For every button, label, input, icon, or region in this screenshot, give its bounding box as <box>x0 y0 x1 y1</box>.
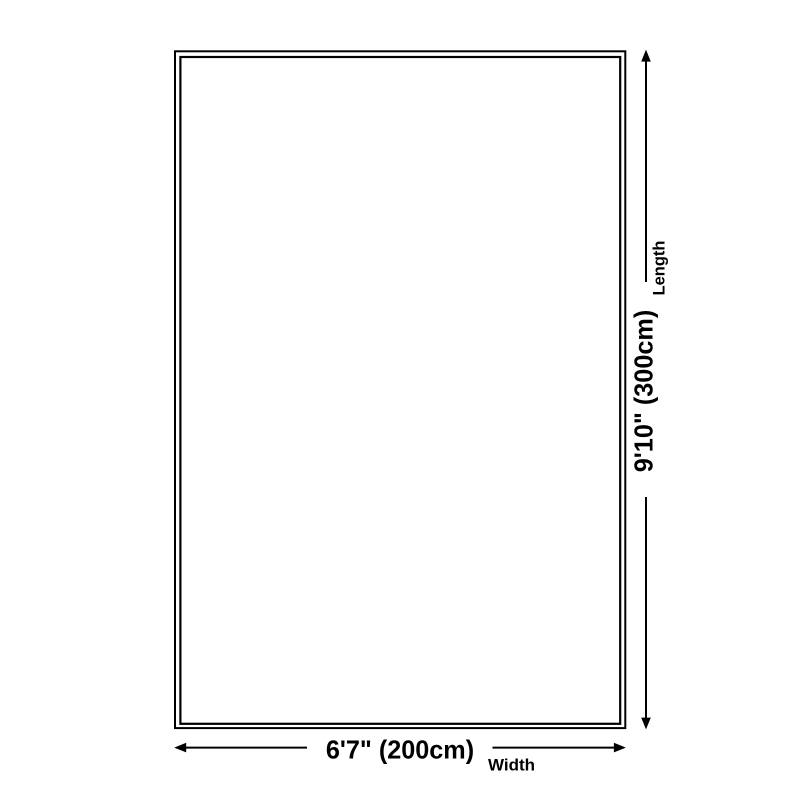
svg-text:Length: Length <box>651 241 669 296</box>
svg-text:9'10" (300cm): 9'10" (300cm) <box>629 310 659 473</box>
svg-text:6'7" (200cm): 6'7" (200cm) <box>326 735 474 765</box>
svg-text:Width: Width <box>488 757 535 775</box>
